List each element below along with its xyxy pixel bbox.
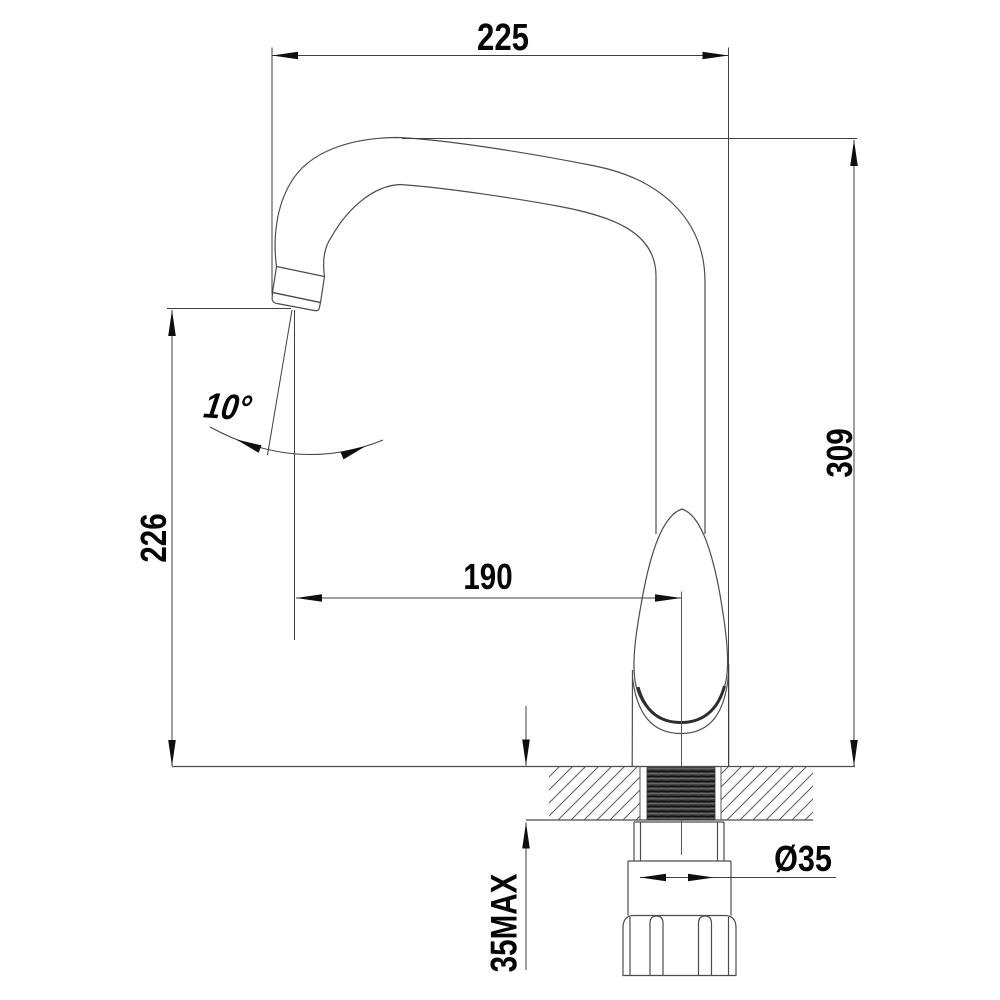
dimension-225	[272, 48, 729, 767]
label-diameter-35: Ø35	[774, 841, 832, 877]
spout-inner-line	[324, 185, 656, 535]
mounting-hardware	[623, 822, 736, 976]
countertop-hatch-left	[549, 767, 640, 820]
dimension-226	[167, 309, 291, 767]
aerator-cap	[272, 293, 320, 311]
countertop-hatch-right	[721, 767, 813, 820]
dimension-309	[402, 139, 858, 767]
dimension-angle-10	[210, 310, 383, 459]
spout-outer-line	[275, 138, 705, 535]
faucet-outline	[272, 138, 729, 856]
label-height-309: 309	[822, 428, 858, 477]
aerator-body	[273, 267, 325, 303]
label-35max: 35MAX	[486, 874, 523, 973]
countertop-section	[172, 767, 855, 821]
stream-angle-line	[268, 310, 293, 455]
mounting-nut-outline	[623, 916, 736, 976]
label-width-190: 190	[463, 559, 512, 595]
label-width-225: 225	[477, 19, 529, 57]
threaded-shank	[647, 768, 715, 820]
label-height-226: 226	[136, 513, 172, 562]
faucet-technical-drawing	[0, 0, 1000, 1000]
nut-slot-2	[699, 916, 712, 976]
drawing-canvas: 225 309 226 190 10° Ø35 35MAX	[0, 0, 1000, 1000]
handle-teardrop	[634, 509, 728, 723]
nut-slot-1	[650, 916, 663, 976]
